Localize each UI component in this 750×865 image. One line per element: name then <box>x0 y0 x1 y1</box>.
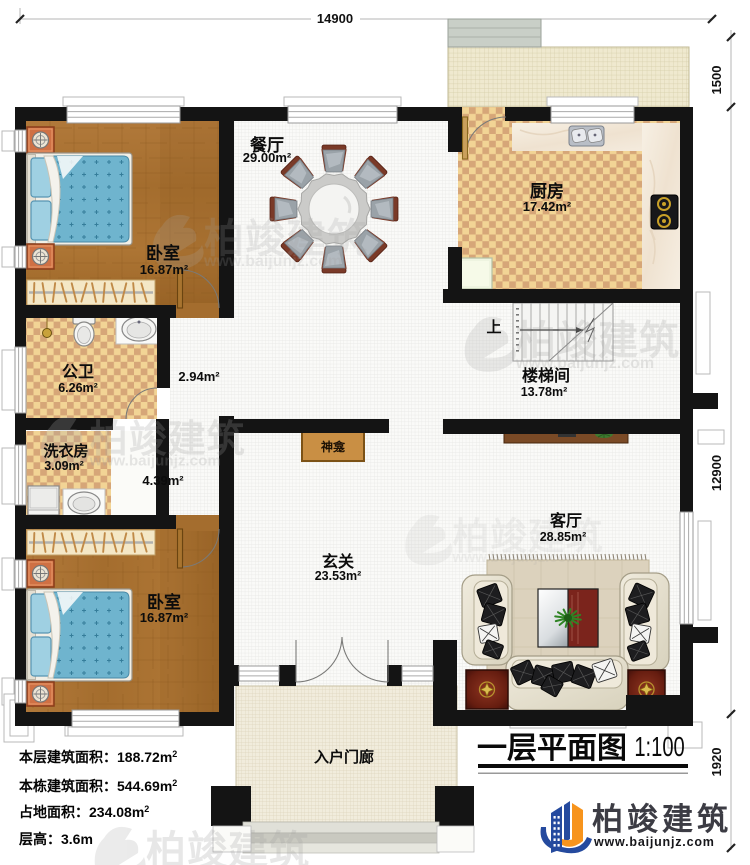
svg-text:17.42m²: 17.42m² <box>523 199 572 214</box>
svg-text:1500: 1500 <box>709 66 724 95</box>
svg-text:柏竣建筑: 柏竣建筑 <box>146 829 310 865</box>
svg-text:厨房: 厨房 <box>530 181 564 201</box>
svg-text:本栋建筑面积：544.69m2: 本栋建筑面积：544.69m2 <box>19 778 177 794</box>
svg-text:12900: 12900 <box>709 455 724 491</box>
svg-text:14900: 14900 <box>317 11 353 26</box>
svg-text:16.87m²: 16.87m² <box>140 262 189 277</box>
svg-text:入户门廊: 入户门廊 <box>314 748 374 766</box>
svg-text:www.baijunjz.com: www.baijunjz.com <box>451 550 579 566</box>
svg-text:上: 上 <box>486 319 501 336</box>
svg-text:神龛: 神龛 <box>321 439 346 454</box>
svg-text:4.39m²: 4.39m² <box>142 473 184 488</box>
svg-text:洗衣房: 洗衣房 <box>43 442 88 460</box>
svg-text:6.26m²: 6.26m² <box>58 381 98 395</box>
svg-text:卧室: 卧室 <box>146 243 180 263</box>
svg-text:13.78m²: 13.78m² <box>521 385 568 399</box>
svg-text:1:100: 1:100 <box>634 732 684 763</box>
svg-text:1920: 1920 <box>709 748 724 777</box>
svg-text:占地面积：234.08m2: 占地面积：234.08m2 <box>19 804 149 820</box>
svg-text:www.baijunjz.com: www.baijunjz.com <box>89 452 221 469</box>
svg-text:29.00m²: 29.00m² <box>243 150 292 165</box>
svg-text:柏竣建筑: 柏竣建筑 <box>592 802 732 837</box>
svg-text:www.baijunjz.com: www.baijunjz.com <box>593 835 715 849</box>
svg-text:3.09m²: 3.09m² <box>44 459 84 473</box>
svg-text:www.baijunjz.com: www.baijunjz.com <box>203 253 342 270</box>
svg-text:16.87m²: 16.87m² <box>140 610 189 625</box>
svg-text:层高：3.6m: 层高：3.6m <box>19 831 93 847</box>
svg-text:23.53m²: 23.53m² <box>315 569 362 583</box>
svg-text:公卫: 公卫 <box>62 363 94 381</box>
svg-text:本层建筑面积：188.72m2: 本层建筑面积：188.72m2 <box>19 749 177 765</box>
svg-text:客厅: 客厅 <box>550 511 582 530</box>
svg-text:28.85m²: 28.85m² <box>540 530 587 544</box>
svg-text:2.94m²: 2.94m² <box>178 369 220 384</box>
svg-text:一层平面图: 一层平面图 <box>477 732 627 765</box>
svg-text:卧室: 卧室 <box>147 592 181 612</box>
svg-text:楼梯间: 楼梯间 <box>522 366 570 385</box>
